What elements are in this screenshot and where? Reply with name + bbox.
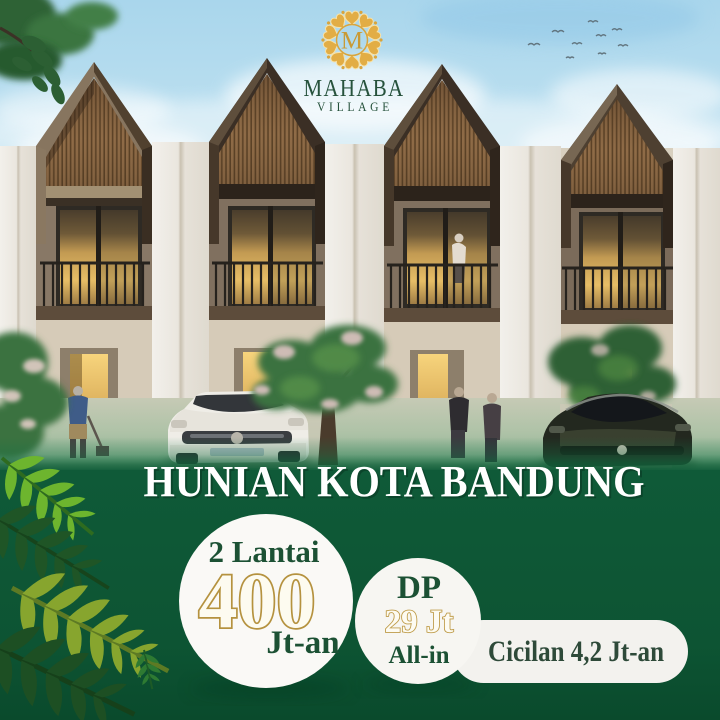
svg-text:Jt-an: Jt-an <box>266 625 339 661</box>
svg-text:M: M <box>341 28 363 55</box>
svg-text:MAHABA: MAHABA <box>304 76 405 102</box>
svg-text:Cicilan 4,2 Jt-an: Cicilan 4,2 Jt-an <box>488 635 664 668</box>
svg-text:All-in: All-in <box>388 642 449 669</box>
svg-text:VILLAGE: VILLAGE <box>317 100 393 114</box>
svg-text:DP: DP <box>397 570 441 606</box>
svg-text:HUNIAN KOTA BANDUNG: HUNIAN KOTA BANDUNG <box>144 457 645 506</box>
svg-text:29 Jt: 29 Jt <box>385 604 454 640</box>
